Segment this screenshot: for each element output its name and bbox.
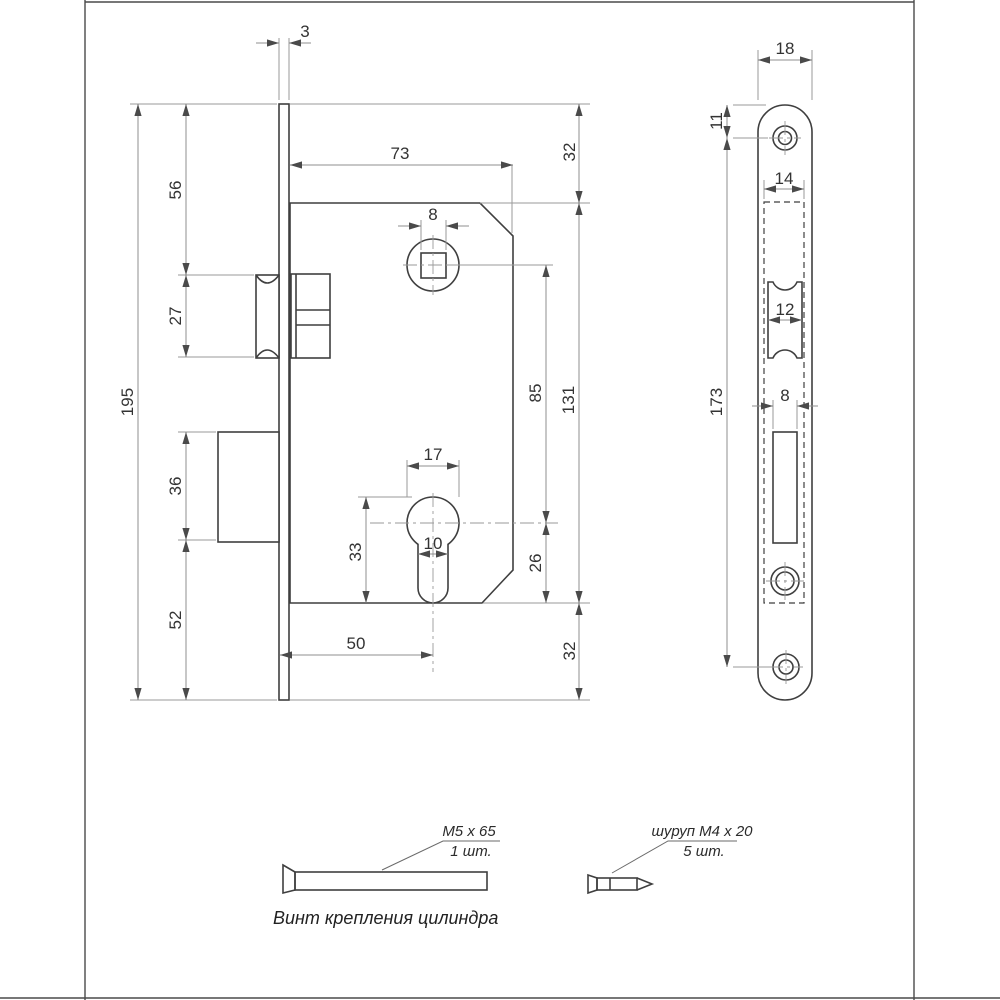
dim-label-bolt-bottom: 52 — [166, 611, 185, 630]
screw-caption: Винт крепления цилиндра — [273, 908, 498, 928]
dim-backset: 50 — [280, 634, 433, 655]
machine-screw-shaft — [295, 872, 487, 890]
dim-plate-width: 18 — [758, 39, 812, 100]
wood-screw-head — [588, 875, 597, 893]
dim-label-offset-bottom: 32 — [560, 642, 579, 661]
latch-bolt-head — [256, 275, 279, 358]
dim-label-latch-top: 56 — [166, 181, 185, 200]
technical-drawing: 3 73 32 131 32 8 56 27 36 52 — [0, 0, 1000, 1000]
dim-label-cyl-center-bottom: 26 — [526, 554, 545, 573]
dim-latch-top: 56 — [166, 104, 186, 275]
dim-label-offset-top: 32 — [560, 143, 579, 162]
deadbolt-side — [218, 432, 279, 542]
dim-label-cyl-to-bottom: 33 — [346, 543, 365, 562]
dim-plate-height: 195 — [118, 104, 138, 700]
wood-screw-label: шуруп M4 x 20 — [651, 823, 753, 840]
dim-offset-bottom: 32 — [560, 603, 579, 700]
dim-label-spindle-square: 8 — [428, 205, 437, 224]
dim-label-plate-thickness: 3 — [300, 22, 309, 41]
wood-screw-qty: 5 шт. — [683, 843, 724, 860]
dim-label-cyl-slot: 10 — [424, 534, 443, 553]
dim-label-body-height: 131 — [559, 386, 578, 414]
dim-label-spindle-to-cyl: 85 — [526, 384, 545, 403]
dim-label-latch-height: 27 — [166, 307, 185, 326]
dim-label-pocket-width: 14 — [775, 169, 794, 188]
machine-screw-qty: 1 шт. — [450, 843, 491, 860]
dim-label-latch-width: 12 — [776, 300, 795, 319]
dim-label-bolt-width: 8 — [780, 386, 789, 405]
dim-body-height: 131 — [559, 203, 579, 603]
dim-label-screw-span: 173 — [707, 388, 726, 416]
lock-body-outline — [290, 203, 513, 603]
machine-screw: M5 x 65 1 шт. — [283, 823, 500, 893]
dim-label-backset: 50 — [347, 634, 366, 653]
dim-bolt-bottom: 52 — [166, 540, 186, 700]
machine-screw-head — [283, 865, 295, 893]
deadbolt-front — [773, 432, 797, 543]
dim-label-plate-height: 195 — [118, 388, 137, 416]
dim-cyl-center-bottom: 26 — [526, 523, 546, 603]
wood-screw: шуруп M4 x 20 5 шт. — [588, 823, 753, 893]
dim-latch-height: 27 — [166, 275, 186, 357]
dim-plate-thickness: 3 — [256, 22, 311, 100]
wood-screw-shaft — [597, 878, 637, 890]
drawing-sheet: 3 73 32 131 32 8 56 27 36 52 — [0, 0, 1000, 1000]
machine-screw-label: M5 x 65 — [442, 823, 496, 840]
wood-screw-tip — [637, 878, 652, 890]
faceplate-side — [279, 104, 289, 700]
dim-label-bolt-height: 36 — [166, 477, 185, 496]
dim-bolt-height: 36 — [166, 432, 186, 540]
dim-label-plate-width: 18 — [776, 39, 795, 58]
latch-head-box — [256, 275, 279, 358]
dim-label-cyl-diameter: 17 — [424, 445, 443, 464]
dim-label-screw-top-offset: 11 — [707, 112, 726, 130]
lock-side-view — [218, 104, 558, 700]
dim-label-body-depth: 73 — [391, 144, 410, 163]
dim-offset-top: 32 — [560, 104, 579, 203]
